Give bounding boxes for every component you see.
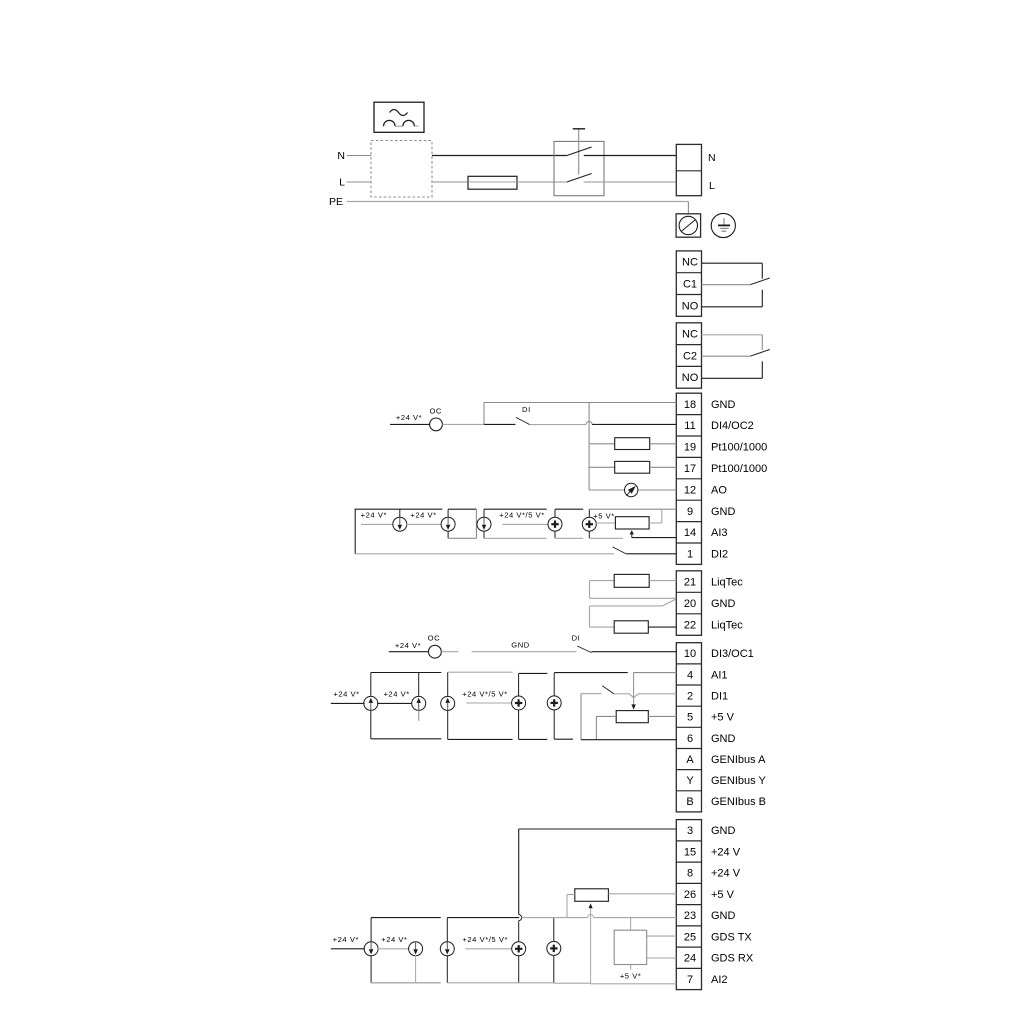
svg-text:GENIbus Y: GENIbus Y (711, 775, 766, 787)
svg-text:L: L (339, 176, 345, 188)
svg-text:GND: GND (711, 399, 736, 411)
svg-text:LiqTec: LiqTec (711, 619, 743, 631)
svg-text:26: 26 (684, 889, 696, 901)
svg-text:B: B (686, 796, 693, 808)
svg-text:AI3: AI3 (711, 527, 728, 539)
svg-text:19: 19 (684, 442, 696, 454)
svg-text:C2: C2 (683, 350, 697, 362)
svg-text:L: L (709, 180, 715, 192)
svg-text:+5 V*: +5 V* (620, 972, 642, 981)
svg-text:25: 25 (684, 931, 696, 943)
svg-text:7: 7 (687, 974, 693, 986)
svg-text:DI: DI (522, 405, 531, 414)
svg-text:GND: GND (711, 733, 736, 745)
svg-text:8: 8 (687, 868, 693, 880)
svg-text:PE: PE (329, 196, 343, 208)
svg-text:N: N (337, 150, 345, 162)
svg-text:GENIbus A: GENIbus A (711, 754, 766, 766)
svg-text:6: 6 (687, 733, 693, 745)
svg-text:+24 V*/5 V*: +24 V*/5 V* (462, 690, 508, 699)
svg-text:GND: GND (511, 640, 530, 649)
svg-text:DI4/OC2: DI4/OC2 (711, 420, 754, 432)
svg-text:9: 9 (687, 506, 693, 518)
svg-text:GENIbus B: GENIbus B (711, 796, 766, 808)
svg-text:+5 V*: +5 V* (593, 511, 615, 520)
svg-text:GND: GND (711, 910, 736, 922)
svg-text:12: 12 (684, 484, 696, 496)
svg-text:+24 V*: +24 V* (333, 689, 359, 698)
svg-text:NC: NC (682, 329, 698, 341)
svg-text:GDS RX: GDS RX (711, 953, 754, 965)
svg-text:23: 23 (684, 910, 696, 922)
svg-text:+24 V*: +24 V* (383, 689, 409, 698)
svg-text:DI2: DI2 (711, 549, 728, 561)
svg-text:Pt100/1000: Pt100/1000 (711, 442, 767, 454)
svg-text:11: 11 (684, 420, 695, 432)
svg-text:NO: NO (682, 372, 699, 384)
svg-text:24: 24 (684, 953, 696, 965)
svg-text:+5 V: +5 V (711, 889, 735, 901)
svg-text:+5 V: +5 V (711, 712, 735, 724)
svg-text:AI1: AI1 (711, 669, 728, 681)
svg-text:NC: NC (682, 257, 698, 269)
svg-text:+24 V*: +24 V* (361, 511, 387, 520)
svg-text:21: 21 (684, 576, 696, 588)
svg-text:GDS TX: GDS TX (711, 931, 752, 943)
svg-text:+24 V: +24 V (711, 868, 741, 880)
svg-text:1: 1 (687, 549, 693, 561)
svg-text:OC: OC (428, 634, 441, 643)
svg-text:GND: GND (711, 598, 736, 610)
svg-text:DI: DI (572, 633, 581, 642)
svg-text:3: 3 (687, 825, 693, 837)
svg-text:Pt100/1000: Pt100/1000 (711, 463, 767, 475)
svg-text:C1: C1 (683, 279, 697, 291)
svg-text:OC: OC (429, 406, 442, 415)
svg-text:20: 20 (684, 598, 696, 610)
svg-text:+24 V*: +24 V* (381, 935, 407, 944)
svg-text:18: 18 (684, 399, 696, 411)
svg-text:17: 17 (684, 463, 696, 475)
svg-text:+24 V*: +24 V* (395, 641, 421, 650)
svg-text:22: 22 (684, 619, 696, 631)
svg-text:10: 10 (684, 648, 696, 660)
svg-text:LiqTec: LiqTec (711, 576, 743, 588)
svg-text:+24 V*: +24 V* (410, 511, 436, 520)
svg-text:AO: AO (711, 484, 727, 496)
svg-text:+24 V*/5 V*: +24 V*/5 V* (462, 935, 508, 944)
svg-text:N: N (708, 152, 716, 164)
svg-text:Y: Y (686, 775, 694, 787)
svg-text:2: 2 (687, 691, 693, 703)
svg-text:15: 15 (684, 846, 696, 858)
svg-text:14: 14 (684, 527, 696, 539)
svg-text:NO: NO (682, 300, 699, 312)
svg-text:GND: GND (711, 825, 736, 837)
svg-text:+24 V*: +24 V* (396, 413, 422, 422)
svg-text:+24 V*/5 V*: +24 V*/5 V* (499, 511, 545, 520)
svg-text:DI3/OC1: DI3/OC1 (711, 648, 754, 660)
svg-text:AI2: AI2 (711, 974, 728, 986)
svg-text:4: 4 (687, 669, 693, 681)
svg-text:+24 V: +24 V (711, 846, 741, 858)
svg-text:DI1: DI1 (711, 691, 728, 703)
svg-text:GND: GND (711, 506, 736, 518)
svg-text:+24 V*: +24 V* (333, 935, 359, 944)
svg-text:5: 5 (687, 712, 693, 724)
svg-text:A: A (686, 754, 694, 766)
